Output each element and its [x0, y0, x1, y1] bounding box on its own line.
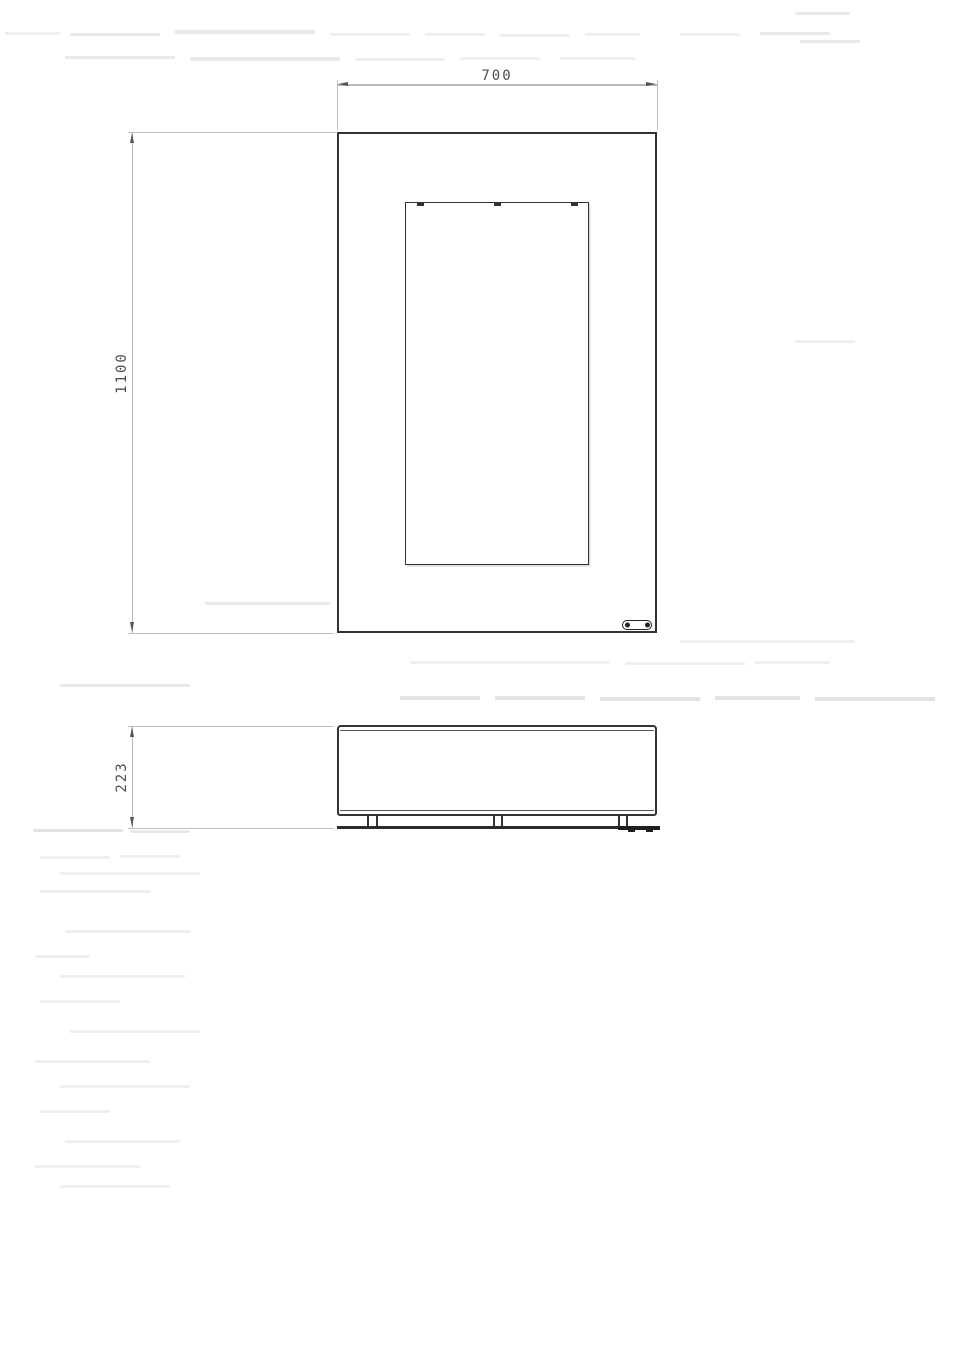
scan-artifact [70, 33, 160, 36]
scan-artifact [70, 1030, 200, 1033]
plan-bottom-edge-line [340, 810, 654, 811]
height-dimension-label: 1100 [96, 347, 148, 399]
scan-artifact [60, 1185, 170, 1188]
scan-artifact [500, 34, 570, 37]
extension-line [657, 80, 658, 130]
scan-artifact [40, 856, 110, 859]
scan-artifact [815, 697, 935, 701]
plan-top-edge-line [340, 730, 654, 731]
scan-artifact [625, 662, 745, 665]
scan-artifact [680, 33, 740, 36]
scan-artifact [460, 57, 540, 60]
scan-artifact [40, 1110, 110, 1113]
scan-artifact [40, 890, 150, 893]
scan-artifact [130, 830, 190, 833]
bottom-rail [337, 826, 659, 829]
frame-clip [571, 203, 578, 206]
scan-artifact [760, 32, 830, 35]
scan-artifact [400, 696, 480, 700]
extension-line [128, 132, 336, 133]
mounting-leg [618, 815, 620, 826]
scan-artifact [800, 40, 860, 43]
scan-artifact [715, 696, 800, 700]
scan-artifact [795, 340, 855, 343]
scan-artifact [40, 1000, 120, 1003]
width-dimension-label: 700 [467, 69, 527, 83]
mounting-leg [626, 815, 628, 826]
scan-artifact [190, 57, 340, 61]
scan-artifact [585, 33, 640, 36]
scan-artifact [175, 30, 315, 34]
extension-line [128, 726, 334, 727]
scan-artifact [755, 661, 830, 664]
rail-foot [628, 830, 635, 832]
extension-line [128, 828, 334, 829]
scan-artifact [355, 58, 445, 61]
scan-artifact [205, 602, 330, 605]
scan-artifact [60, 684, 190, 687]
plan-body [337, 725, 657, 816]
scan-artifact [60, 872, 200, 875]
scan-artifact [5, 32, 60, 35]
rail-foot [646, 830, 653, 832]
drawing-sheet: 700 1100 223 [0, 0, 960, 1357]
scan-artifact [35, 1165, 140, 1168]
arrowhead-up-icon [130, 133, 134, 143]
mounting-leg [367, 815, 369, 826]
scan-artifact [680, 640, 855, 643]
scan-artifact [65, 1140, 180, 1143]
mounting-leg [493, 815, 495, 826]
scan-artifact [410, 661, 610, 664]
arrowhead-left-icon [338, 82, 348, 86]
scan-artifact [600, 697, 700, 701]
scan-artifact [495, 696, 585, 700]
arrowhead-up-icon [130, 727, 134, 737]
mounting-leg [501, 815, 503, 826]
nameplate-badge [622, 620, 652, 630]
scan-artifact [120, 855, 180, 858]
nameplate-screw-icon [625, 623, 630, 628]
scan-artifact [65, 56, 175, 59]
scan-artifact [60, 975, 185, 978]
rail-end-cap [618, 826, 660, 830]
scan-artifact [65, 930, 190, 933]
mounting-leg [376, 815, 378, 826]
scan-artifact [60, 1085, 190, 1088]
extension-line [128, 633, 334, 634]
frame-clip [494, 203, 501, 206]
nameplate-screw-icon [645, 623, 650, 628]
arrowhead-right-icon [646, 82, 656, 86]
scan-artifact [330, 33, 410, 36]
extension-line [337, 80, 338, 130]
dimension-line [337, 84, 657, 86]
scan-artifact [795, 12, 850, 15]
arrowhead-down-icon [130, 817, 134, 827]
scan-artifact [33, 829, 123, 832]
depth-dimension-label: 223 [96, 751, 148, 803]
frame-clip [417, 203, 424, 206]
scan-artifact [35, 1060, 150, 1063]
scan-artifact [35, 955, 90, 958]
scan-artifact [560, 57, 635, 60]
scan-artifact [425, 33, 485, 36]
front-opening [405, 202, 589, 565]
arrowhead-down-icon [130, 622, 134, 632]
